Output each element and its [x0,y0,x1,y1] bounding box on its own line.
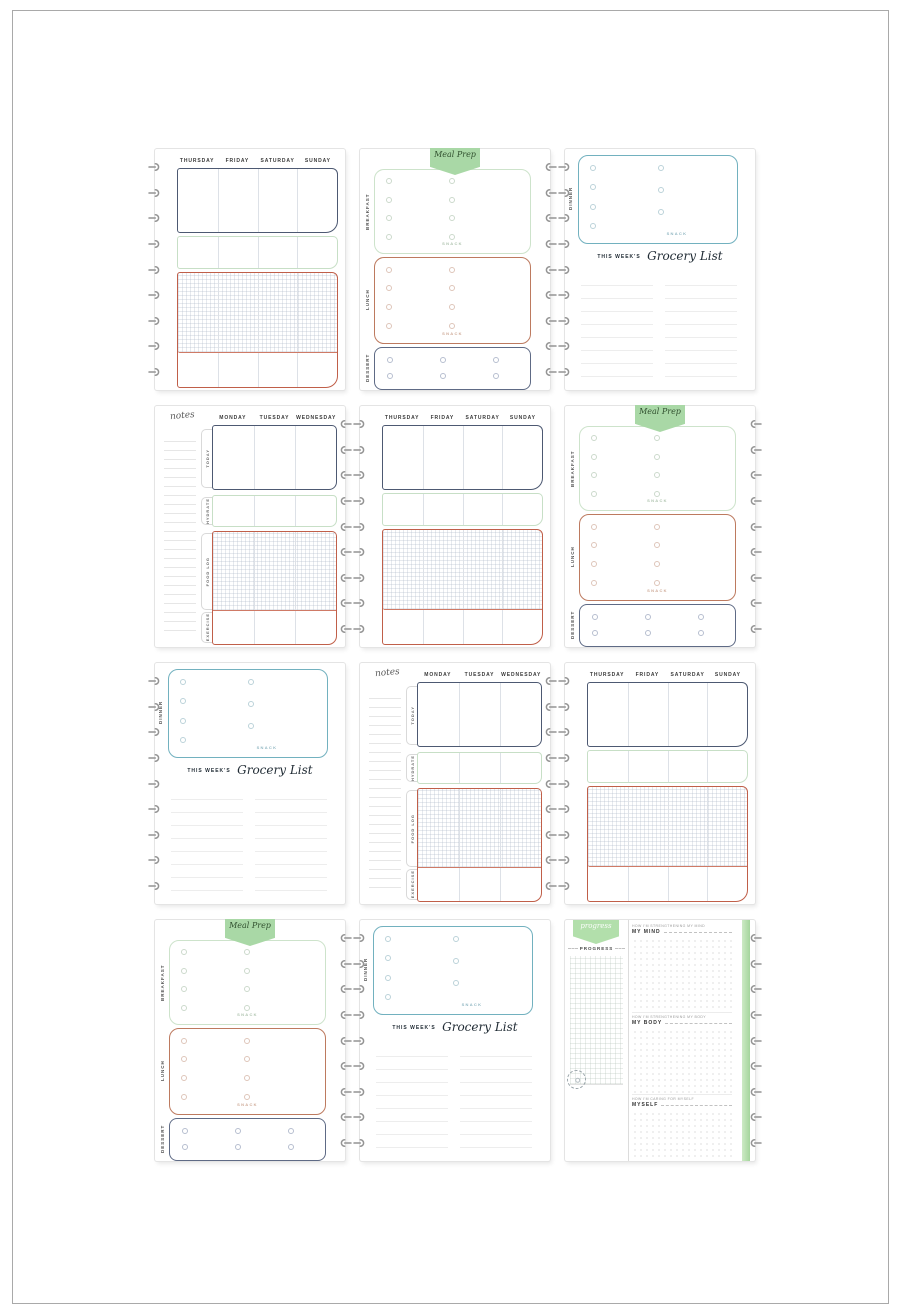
dessert-box [579,604,736,647]
disc-hole-icon [558,804,573,814]
disc-hole-icon [148,779,163,789]
disc-hole-icon [353,547,368,557]
bullet-circle-icon [248,701,254,707]
food-log-box [417,788,542,902]
disc-hole-icon [542,881,557,891]
column-divider [668,787,669,866]
disc-hole-icon [337,419,352,429]
disc-hole-icon [353,522,368,532]
planner-page-dinner-grocery-1: DINNER SNACK THIS WEEK'S Grocery List [565,149,755,390]
disc-hole-icon [558,341,573,351]
planner-page-dinner-grocery-3: DINNER SNACK THIS WEEK'S Grocery List [360,920,550,1161]
bullet-circle-icon [654,542,660,548]
column-divider [463,494,464,525]
disc-hole-icon [148,188,163,198]
planner-page-weekly-thu-sun-2: THURSDAY FRIDAY SATURDAY SUNDAY [360,406,550,647]
bullet-circle-icon [181,986,187,992]
weekly-bottom-row [588,867,747,901]
snack-label: SNACK [647,498,668,503]
bullet-circle-icon [449,215,455,221]
column-divider [707,787,708,866]
disc-holes [353,419,368,634]
disc-hole-icon [337,573,352,583]
bullet-circle-icon [440,357,446,363]
snack-label: SNACK [442,331,463,336]
column-divider [500,868,501,901]
snack-label: SNACK [237,1102,258,1107]
column-divider [707,867,708,901]
progress-label-row: PROGRESS [568,946,625,951]
disc-hole-icon [337,933,352,943]
disc-hole-icon [353,1087,368,1097]
bullet-circle-icon [591,542,597,548]
column-divider [502,530,503,609]
day-label: WEDNESDAY [295,415,337,421]
bullet-circle-icon [235,1128,241,1134]
dessert-label: DESSERT [570,607,575,643]
column-divider [297,237,298,268]
disc-hole-icon [353,959,368,969]
column-divider [258,169,259,232]
breakfast-label: BREAKFAST [160,958,165,1008]
disc-hole-icon [558,881,573,891]
bullet-circle-icon [590,223,596,229]
column-divider [500,683,501,746]
bullet-circle-icon [248,723,254,729]
disc-hole-icon [353,1112,368,1122]
dessert-label: DESSERT [160,1121,165,1157]
disc-hole-icon [558,830,573,840]
bullet-circle-icon [235,1144,241,1150]
planner-page-meal-prep-3: Meal Prep BREAKFAST SNACK LUNCH SNACK DE… [155,920,345,1161]
disc-hole-icon [542,265,557,275]
hydrate-box [417,752,542,784]
disc-hole-icon [337,984,352,994]
bullet-circle-icon [244,1094,250,1100]
disc-hole-icon [337,547,352,557]
disc-holes [558,676,573,891]
bullet-row [182,1144,294,1150]
dessert-box [169,1118,326,1161]
grocery-lines-right [460,1044,532,1155]
column-divider [258,237,259,268]
day-label: FRIDAY [217,158,257,164]
dessert-box [374,347,531,390]
bullet-circle-icon [591,435,597,441]
bullet-circle-icon [658,165,664,171]
grocery-list-heading: THIS WEEK'S Grocery List [565,247,755,265]
disc-holes [148,162,163,377]
bullet-circle-icon [453,958,459,964]
bullet-circle-icon [244,1056,250,1062]
planner-page-weekly-thu-sun-1: THURSDAY FRIDAY SATURDAY SUNDAY [155,149,345,390]
disc-holes [148,676,163,891]
column-divider [459,868,460,901]
disc-hole-icon [337,522,352,532]
column-divider [668,867,669,901]
grocery-lines-left [376,1044,448,1155]
disc-hole-icon [148,830,163,840]
hydrate-label: HYDRATE [410,755,415,781]
disc-hole-icon [337,1087,352,1097]
breakfast-label: BREAKFAST [365,187,370,237]
column-divider [423,530,424,609]
bullet-circle-icon [590,204,596,210]
bullet-circle-icon [658,209,664,215]
bullet-circle-icon [180,698,186,704]
hydrate-box [212,495,337,527]
myself-label: MYSELF [632,1102,658,1108]
column-divider [502,426,503,489]
progress-banner: progress [573,920,619,944]
grocery-lines-left [581,273,653,384]
bullet-column [591,524,597,587]
grocery-title: Grocery List [237,763,313,777]
column-divider [459,789,460,867]
bullet-row [387,373,499,379]
disc-hole-icon [747,984,762,994]
bullet-circle-icon [591,454,597,460]
column-divider [297,353,298,387]
bullet-circle-icon [449,323,455,329]
column-divider [459,683,460,746]
bullet-circle-icon [654,491,660,497]
disc-hole-icon [337,470,352,480]
weekly-top-box [177,168,338,233]
day-label: MONDAY [417,672,459,678]
disc-hole-icon [353,933,368,943]
bullet-circle-icon [654,435,660,441]
bullet-circle-icon [440,373,446,379]
column-divider [463,426,464,489]
column-divider [297,169,298,232]
bullet-column [449,267,455,330]
dessert-label: DESSERT [365,350,370,386]
bullet-circle-icon [181,1038,187,1044]
disc-hole-icon [542,804,557,814]
breakfast-box: SNACK [579,426,736,511]
progress-grid-area [570,956,623,1085]
disc-hole-icon [148,367,163,377]
disc-hole-icon [747,496,762,506]
weekly-grid-box [587,786,748,902]
disc-hole-icon [747,1087,762,1097]
planner-page-notes-mon-wed-1: notes MONDAY TUESDAY WEDNESDAY TODAY HYD… [155,406,345,647]
weekly-top-box [382,425,543,490]
dot-grid-area [632,1111,732,1160]
disc-hole-icon [558,188,573,198]
disc-hole-icon [542,676,557,686]
dinner-box: SNACK [168,669,328,758]
bullet-row [182,1128,294,1134]
column-divider [463,530,464,609]
grocery-list-heading: THIS WEEK'S Grocery List [155,761,345,779]
column-divider [628,683,629,746]
lunch-label: LUNCH [160,1053,165,1089]
food-log-label: FOOD LOG [205,557,210,586]
food-log-label: FOOD LOG [410,814,415,843]
disc-hole-icon [353,496,368,506]
dinner-box: SNACK [373,926,533,1015]
disc-hole-icon [353,598,368,608]
graph-grid-area [178,273,337,353]
bullet-circle-icon [698,630,704,636]
bullet-circle-icon [645,614,651,620]
exercise-label: EXERCISE [410,870,415,898]
bullet-circle-icon [654,580,660,586]
bullet-circle-icon [248,679,254,685]
bullet-circle-icon [244,986,250,992]
column-divider [258,353,259,387]
bullet-circle-icon [658,187,664,193]
day-label: TUESDAY [459,672,501,678]
disc-hole-icon [542,830,557,840]
bullet-column [590,165,596,229]
disc-hole-icon [747,598,762,608]
bullet-column [654,435,660,496]
bullet-circle-icon [449,234,455,240]
disc-hole-icon [148,265,163,275]
bullet-column [385,936,391,1000]
notes-heading: notes [170,410,196,422]
column-divider [628,867,629,901]
bullet-column [181,949,187,1010]
graph-grid-area [418,789,541,868]
bullet-circle-icon [493,373,499,379]
bullet-circle-icon [592,630,598,636]
disc-hole-icon [747,1036,762,1046]
column-divider [668,683,669,746]
day-label: THURSDAY [382,415,422,421]
disc-hole-icon [353,1061,368,1071]
weekly-middle-box [177,236,338,269]
bullet-circle-icon [698,614,704,620]
progress-left-column: progress PROGRESS [565,920,629,1161]
bullet-row [387,357,499,363]
snack-label: SNACK [237,1012,258,1017]
disc-hole-icon [558,290,573,300]
disc-hole-icon [353,1010,368,1020]
planner-page-meal-prep-1: Meal Prep BREAKFAST SNACK LUNCH SNACK DE… [360,149,550,390]
disc-hole-icon [353,445,368,455]
bullet-circle-icon [645,630,651,636]
my-mind-section: HOW I'M STRENGTHENING MY MIND MY MIND [632,924,732,1010]
grocery-list-heading: THIS WEEK'S Grocery List [360,1018,550,1036]
disc-hole-icon [558,162,573,172]
column-divider [707,683,708,746]
graph-grid-area [213,532,336,611]
food-log-box [212,531,337,645]
column-divider [218,237,219,268]
weekly-middle-box [587,750,748,783]
bullet-circle-icon [288,1128,294,1134]
bullet-circle-icon [654,524,660,530]
column-divider [295,496,296,526]
disc-holes [337,419,352,634]
bullet-circle-icon [453,980,459,986]
day-header-row: THURSDAY FRIDAY SATURDAY SUNDAY [177,158,338,164]
disc-hole-icon [542,753,557,763]
bullet-circle-icon [591,524,597,530]
day-header-row: MONDAY TUESDAY WEDNESDAY [417,672,542,678]
disc-holes [337,933,352,1148]
bullet-circle-icon [387,357,393,363]
disc-hole-icon [148,804,163,814]
disc-hole-icon [337,1036,352,1046]
day-label: FRIDAY [627,672,667,678]
disc-hole-icon [542,727,557,737]
bullet-circle-icon [386,234,392,240]
disc-hole-icon [558,316,573,326]
disc-hole-icon [747,1138,762,1148]
disc-hole-icon [337,1010,352,1020]
disc-hole-icon [148,316,163,326]
day-label: SUNDAY [708,672,748,678]
snack-label: SNACK [442,241,463,246]
disc-hole-icon [148,727,163,737]
bullet-column [453,936,459,986]
disc-hole-icon [337,959,352,969]
dash-rule [568,948,578,949]
bullet-circle-icon [385,994,391,1000]
today-label: TODAY [205,449,210,468]
disc-hole-icon [148,676,163,686]
planner-page-meal-prep-2: Meal Prep BREAKFAST SNACK LUNCH SNACK DE… [565,406,755,647]
disc-hole-icon [747,624,762,634]
bullet-column [591,435,597,496]
weekly-middle-box [382,493,543,526]
bullet-circle-icon [244,1005,250,1011]
bullet-circle-icon [449,285,455,291]
column-divider [502,494,503,525]
disc-hole-icon [542,188,557,198]
column-divider [500,789,501,867]
bullet-circle-icon [180,737,186,743]
bullet-circle-icon [385,936,391,942]
snack-label: SNACK [667,231,688,236]
bullet-circle-icon [181,968,187,974]
day-header-row: MONDAY TUESDAY WEDNESDAY [212,415,337,421]
bullet-row [592,630,704,636]
bullet-circle-icon [590,184,596,190]
exercise-row [213,611,336,644]
disc-hole-icon [747,445,762,455]
breakfast-box: SNACK [374,169,531,254]
bullet-circle-icon [386,178,392,184]
bullet-circle-icon [592,614,598,620]
bullet-column [244,1038,250,1101]
bullet-circle-icon [449,197,455,203]
bullet-circle-icon [181,1005,187,1011]
disc-hole-icon [542,162,557,172]
bullet-circle-icon [288,1144,294,1150]
disc-hole-icon [542,213,557,223]
disc-hole-icon [353,419,368,429]
day-label: SUNDAY [298,158,338,164]
snack-label: SNACK [257,745,278,750]
disc-hole-icon [148,702,163,712]
bullet-circle-icon [386,304,392,310]
notes-lined-column [369,690,401,896]
column-divider [254,532,255,610]
disc-hole-icon [337,1138,352,1148]
dash-rule [664,932,732,933]
disc-hole-icon [558,239,573,249]
snack-label: SNACK [462,1002,483,1007]
bullet-circle-icon [385,975,391,981]
notes-heading: notes [375,667,401,679]
disc-holes [747,933,762,1148]
disc-hole-icon [747,1061,762,1071]
disc-hole-icon [558,676,573,686]
bullet-column [658,165,664,215]
exercise-row [418,868,541,901]
disc-hole-icon [337,624,352,634]
column-divider [254,426,255,489]
lunch-label: LUNCH [570,539,575,575]
bullet-circle-icon [180,679,186,685]
disc-hole-icon [747,547,762,557]
exercise-label: EXERCISE [205,613,210,641]
bullet-circle-icon [386,323,392,329]
lunch-box: SNACK [169,1028,326,1115]
bullet-circle-icon [244,949,250,955]
disc-hole-icon [558,265,573,275]
bullet-circle-icon [591,472,597,478]
disc-hole-icon [747,419,762,429]
disc-hole-icon [148,239,163,249]
disc-holes [353,933,368,1148]
breakfast-box: SNACK [169,940,326,1025]
bullet-column [244,949,250,1010]
today-box [417,682,542,747]
column-divider [295,426,296,489]
disc-hole-icon [353,573,368,583]
column-divider [463,610,464,644]
today-label: TODAY [410,706,415,725]
bullet-circle-icon [181,949,187,955]
grocery-prefix: THIS WEEK'S [392,1025,435,1031]
progress-label: PROGRESS [580,946,614,951]
grocery-prefix: THIS WEEK'S [597,254,640,260]
column-divider [258,273,259,352]
bullet-circle-icon [180,718,186,724]
dot-grid-area [632,938,732,1010]
bullet-column [180,679,186,743]
bullet-circle-icon [244,1075,250,1081]
graph-grid-area [383,530,542,610]
disc-hole-icon [353,1138,368,1148]
bullet-circle-icon [386,267,392,273]
grocery-title: Grocery List [647,249,723,263]
day-label: FRIDAY [422,415,462,421]
bullet-circle-icon [591,491,597,497]
disc-hole-icon [747,1010,762,1020]
breakfast-label: BREAKFAST [570,444,575,494]
column-divider [668,751,669,782]
disc-holes [747,419,762,634]
bullet-circle-icon [449,267,455,273]
disc-holes [542,162,557,377]
column-divider [423,494,424,525]
day-label: WEDNESDAY [500,672,542,678]
dash-rule [661,1105,732,1106]
disc-hole-icon [558,779,573,789]
column-divider [218,353,219,387]
day-header-row: THURSDAY FRIDAY SATURDAY SUNDAY [382,415,543,421]
day-label: THURSDAY [177,158,217,164]
bullet-circle-icon [386,197,392,203]
